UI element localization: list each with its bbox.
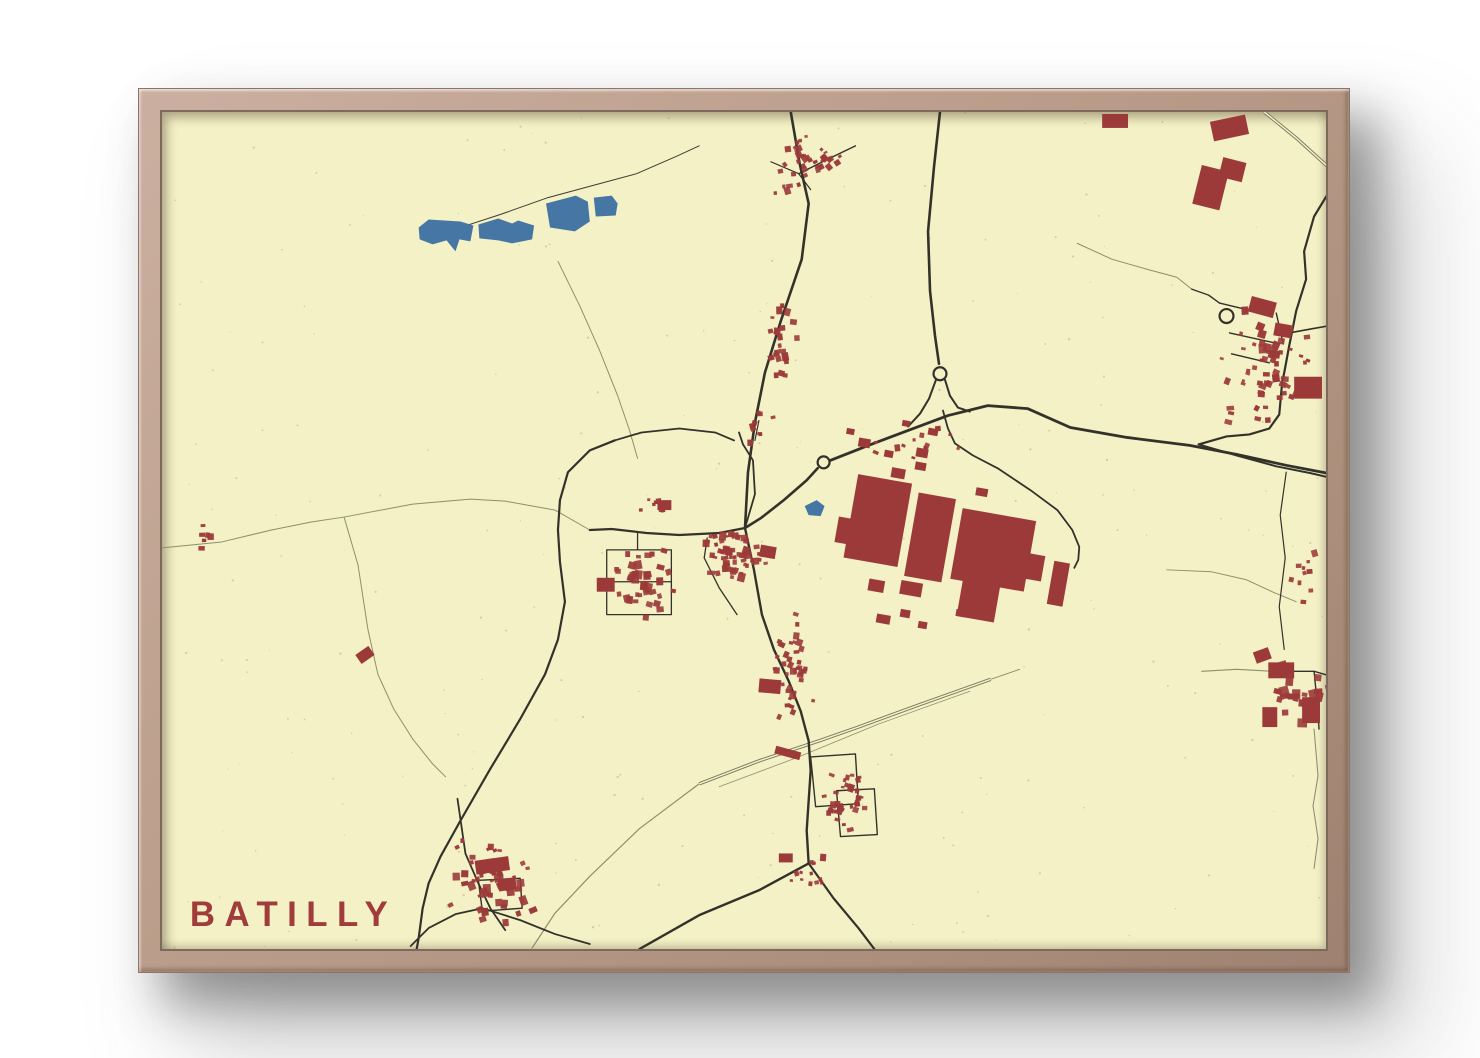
paper-speckle-texture [173, 112, 1323, 949]
buildings-layer [198, 114, 1326, 926]
field-paths-layer [162, 146, 1318, 948]
poster-frame: BATILLY [138, 88, 1350, 973]
poster-title: BATILLY [190, 895, 397, 934]
page-background: BATILLY [0, 0, 1480, 1058]
map-canvas: BATILLY [162, 112, 1326, 949]
railway-layer [699, 112, 1326, 784]
lakes-water-layer [419, 196, 825, 516]
map-sheet: BATILLY [160, 110, 1328, 951]
